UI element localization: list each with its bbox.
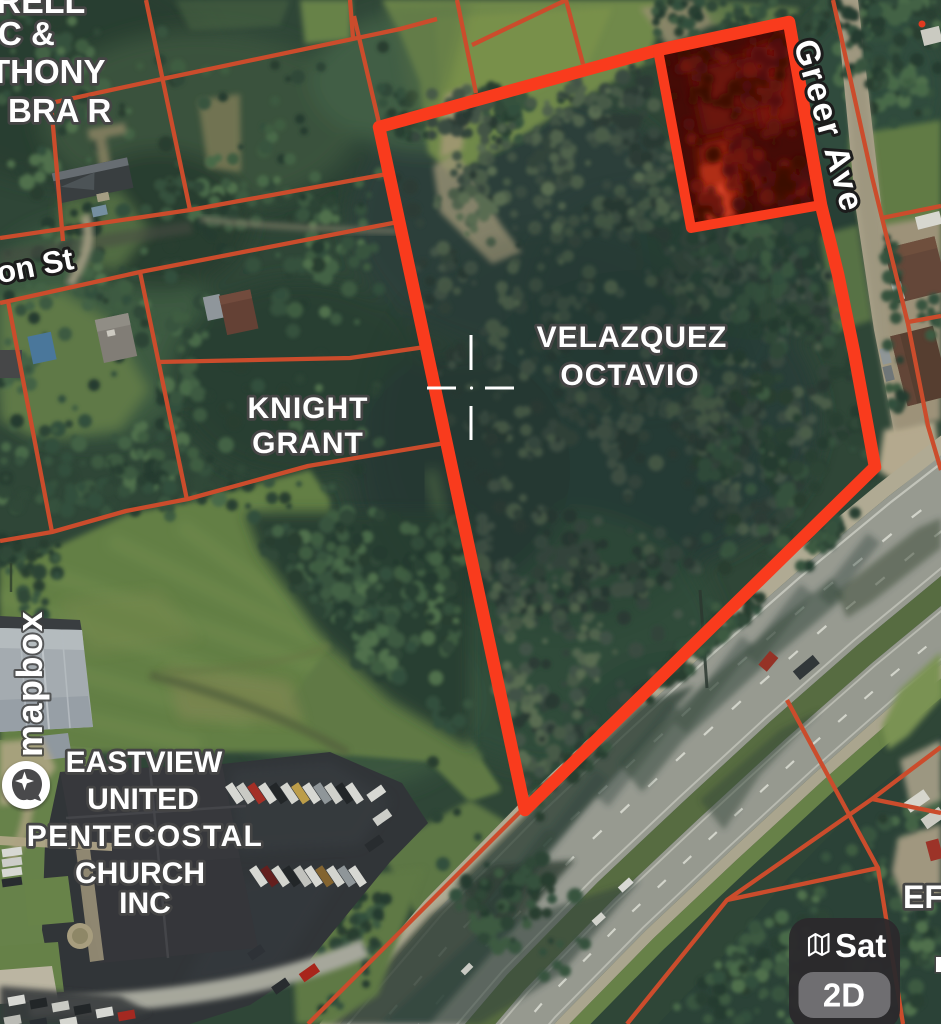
svg-text:VELAZQUEZ: VELAZQUEZ xyxy=(537,321,728,354)
svg-text:mapbox: mapbox xyxy=(9,610,50,757)
svg-text:GRANT: GRANT xyxy=(252,427,364,460)
svg-text:OCTAVIO: OCTAVIO xyxy=(560,359,699,392)
svg-text:PENTECOSTAL: PENTECOSTAL xyxy=(27,820,264,853)
svg-text:INC: INC xyxy=(119,887,171,920)
svg-text:KNIGHT: KNIGHT xyxy=(248,392,369,425)
svg-text:Sat: Sat xyxy=(835,927,886,964)
svg-text:C &: C & xyxy=(0,15,55,52)
svg-text:CHURCH: CHURCH xyxy=(75,857,205,890)
svg-text:EF: EF xyxy=(903,879,941,915)
svg-text:EASTVIEW: EASTVIEW xyxy=(66,746,223,779)
svg-text:2D: 2D xyxy=(823,977,865,1014)
svg-text:THONY: THONY xyxy=(0,53,106,90)
svg-text:BRA R: BRA R xyxy=(8,92,111,129)
svg-text:UNITED: UNITED xyxy=(87,783,199,816)
